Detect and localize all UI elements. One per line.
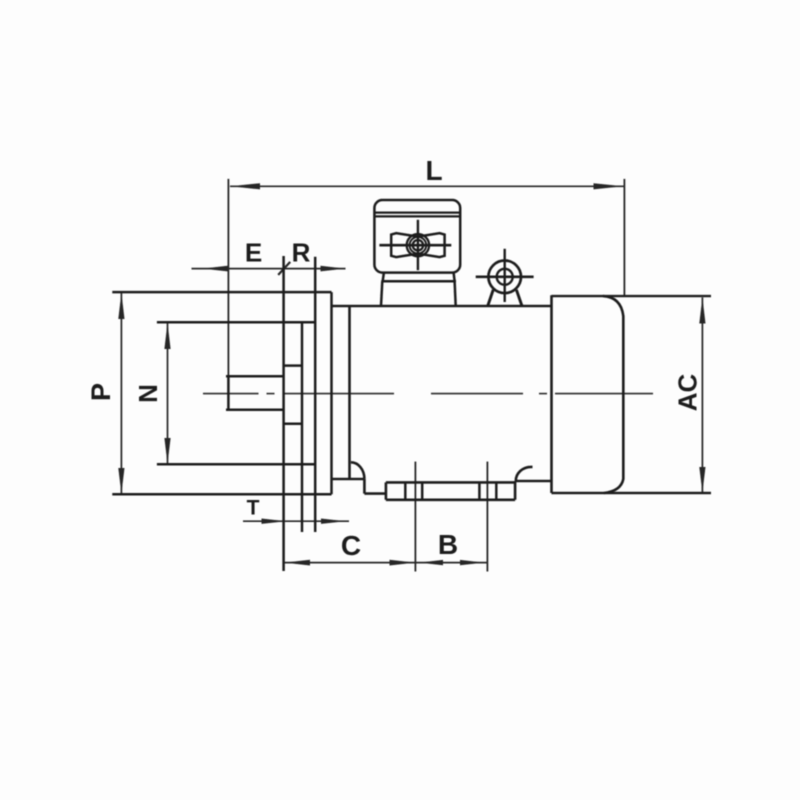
svg-text:P: P	[86, 383, 116, 401]
svg-text:L: L	[425, 155, 442, 186]
svg-text:C: C	[341, 530, 361, 561]
svg-text:N: N	[133, 384, 163, 403]
svg-text:B: B	[438, 529, 458, 560]
svg-text:R: R	[292, 238, 311, 268]
svg-text:AC: AC	[672, 374, 702, 412]
svg-text:E: E	[245, 238, 262, 268]
svg-text:T: T	[247, 497, 260, 520]
